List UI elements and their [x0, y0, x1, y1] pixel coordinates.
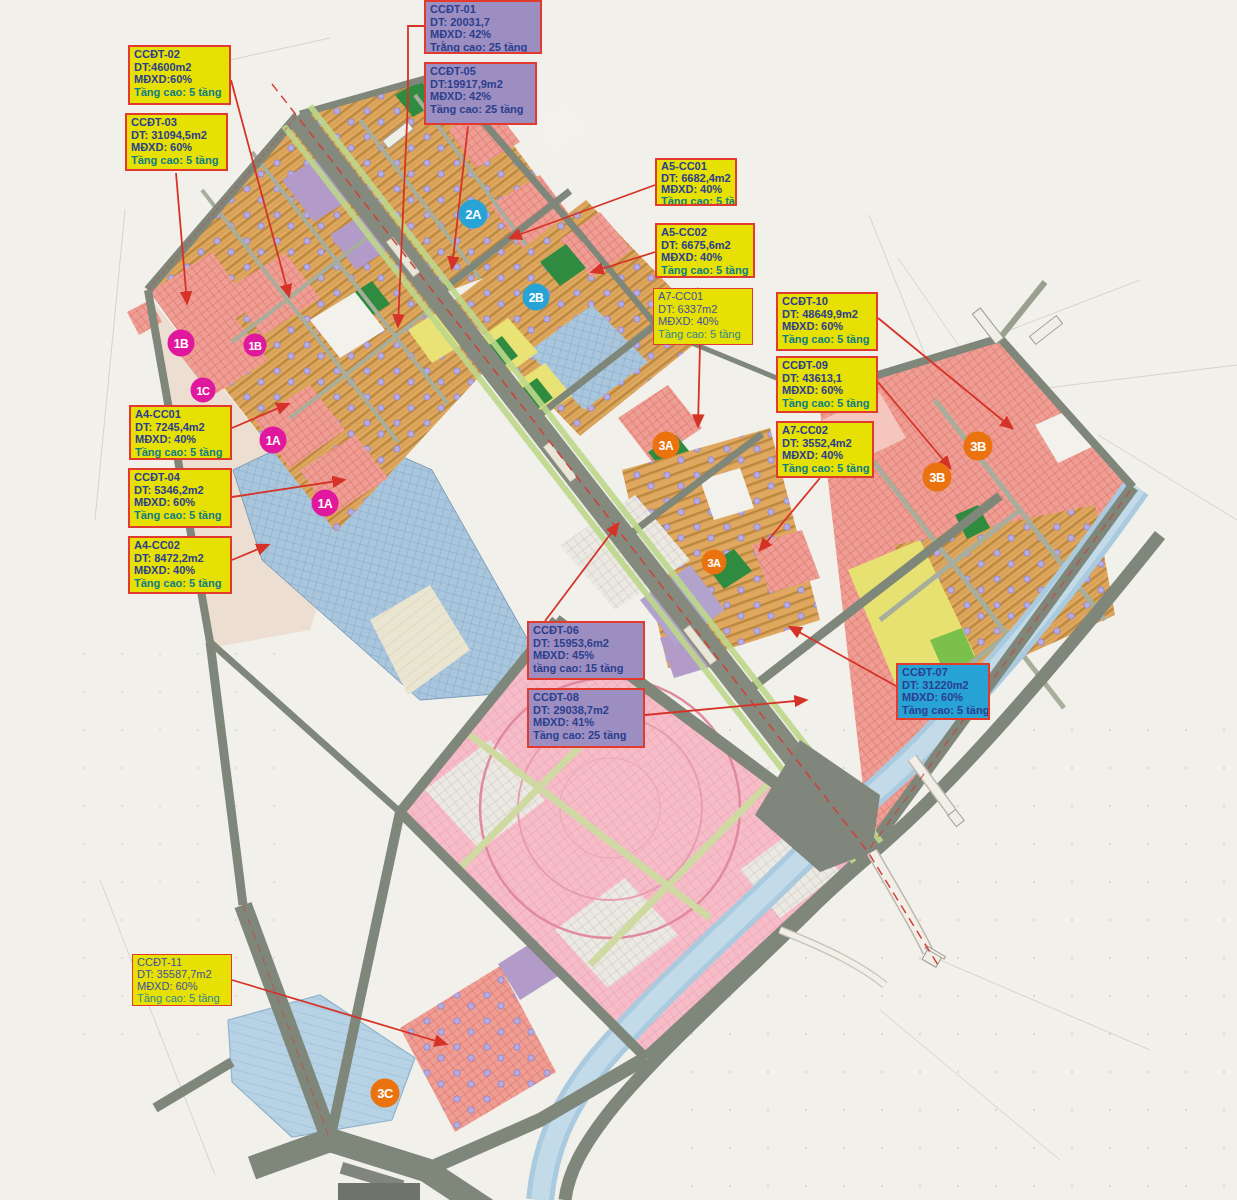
zone-marker-1a-2: 1A: [312, 490, 339, 517]
zone-density: MĐXD: 41%: [533, 716, 639, 729]
zone-floors: Trằng cao: 25 tầng: [430, 41, 536, 54]
zone-area: DT:4600m2: [134, 61, 225, 74]
zone-density: MĐXD: 40%: [782, 449, 868, 462]
zone-area: DT: 15953,6m2: [533, 637, 639, 650]
zone-label-ccdt-01: CCĐT-01 DT: 20031,7 MĐXD: 42% Trằng cao:…: [424, 0, 542, 54]
zone-label-a7-cc02: A7-CC02 DT: 3552,4m2 MĐXD: 40% Tầng cao:…: [776, 421, 874, 478]
zone-id: CCĐT-08: [533, 691, 639, 704]
zone-id: CCĐT-01: [430, 3, 536, 16]
zone-floors: Tầng cao: 5 tầng: [134, 509, 226, 522]
zone-label-a7-cc01: A7-CC01 DT: 6337m2 MĐXD: 40% Tầng cao: 5…: [653, 288, 753, 345]
zone-id: CCĐT-09: [782, 359, 872, 372]
zone-marker-2b: 2B: [523, 284, 550, 311]
zone-id: A7-CC01: [658, 290, 748, 303]
zone-floors: Tầng cao: 5 tầng: [902, 704, 984, 717]
zone-id: A4-CC02: [134, 539, 226, 552]
zone-density: MĐXD: 40%: [658, 315, 748, 328]
zone-density: MĐXD: 40%: [134, 564, 226, 577]
zone-floors: Tầng cao: 5 tầng: [134, 86, 225, 99]
zone-density: MĐXD: 40%: [135, 433, 226, 446]
zone-label-ccdt-10: CCĐT-10 DT: 48649,9m2 MĐXD: 60% Tầng cao…: [776, 292, 878, 351]
zone-floors: Tầng cao: 5 tầng: [782, 462, 868, 475]
zone-density: MĐXD:60%: [134, 73, 225, 86]
zone-floors: Tầng cao: 5 tầng: [782, 333, 872, 346]
zone-id: CCĐT-10: [782, 295, 872, 308]
zone-id: CCĐT-02: [134, 48, 225, 61]
zone-floors: Tầng cao: 5 tầng: [782, 397, 872, 410]
zone-marker-3c: 3C: [371, 1079, 400, 1108]
zone-id: CCĐT-07: [902, 666, 984, 679]
zone-marker-3a-2: 3A: [702, 550, 727, 575]
zone-density: MĐXD: 40%: [661, 251, 749, 264]
zone-area: DT: 8472,2m2: [134, 552, 226, 565]
zone-area: DT: 29038,7m2: [533, 704, 639, 717]
zone-id: A4-CC01: [135, 408, 226, 421]
zone-label-ccdt-08: CCĐT-08 DT: 29038,7m2 MĐXD: 41% Tầng cao…: [527, 688, 645, 748]
zone-area: DT: 35587,7m2: [137, 968, 227, 980]
zone-label-ccdt-04: CCĐT-04 DT: 5346,2m2 MĐXD: 60% Tầng cao:…: [128, 468, 232, 528]
zone-floors: Tầng cao: 5 tầng: [661, 264, 749, 277]
zoning-map-page: CCĐT-01 DT: 20031,7 MĐXD: 42% Trằng cao:…: [0, 0, 1237, 1200]
zone-label-a5-cc01: A5-CC01 DT: 6682,4m2 MĐXD: 40% Tầng cao:…: [655, 158, 737, 206]
zone-id: CCĐT-11: [137, 956, 227, 968]
zone-label-ccdt-09: CCĐT-09 DT: 43613,1 MĐXD: 60% Tầng cao: …: [776, 356, 878, 413]
zone-id: A7-CC02: [782, 424, 868, 437]
zone-label-ccdt-07: CCĐT-07 DT: 31220m2 MĐXD: 60% Tầng cao: …: [896, 663, 990, 720]
zone-id: A5-CC01: [661, 161, 731, 173]
zone-floors: Tầng cao: 25 tầng: [430, 103, 531, 116]
zone-floors: Tầng cao: 5 tầng: [661, 196, 731, 206]
zone-area: DT: 6337m2: [658, 303, 748, 316]
zone-area: DT: 20031,7: [430, 16, 536, 29]
zone-density: MĐXD: 45%: [533, 649, 639, 662]
zone-label-a5-cc02: A5-CC02 DT: 6675,6m2 MĐXD: 40% Tầng cao:…: [655, 223, 755, 278]
zone-density: MĐXD: 60%: [134, 496, 226, 509]
zone-area: DT: 3552,4m2: [782, 437, 868, 450]
zone-density: MĐXD: 42%: [430, 28, 536, 41]
zone-floors: Tầng cao: 5 tầng: [135, 446, 226, 459]
zone-floors: Tầng cao: 5 tầng: [658, 328, 748, 341]
zone-marker-2a: 2A: [459, 200, 488, 229]
zone-marker-1c: 1C: [191, 378, 216, 403]
map-canvas: [0, 0, 1237, 1200]
zone-area: DT: 6675,6m2: [661, 239, 749, 252]
zone-marker-3a: 3A: [653, 432, 680, 459]
zone-marker-1b-2: 1B: [244, 334, 267, 357]
zone-density: MĐXD: 60%: [131, 141, 222, 154]
zone-area: DT: 48649,9m2: [782, 308, 872, 321]
zone-area: DT: 7245,4m2: [135, 421, 226, 434]
zone-id: CCĐT-03: [131, 116, 222, 129]
zone-area: DT: 43613,1: [782, 372, 872, 385]
zone-density: MĐXD: 60%: [782, 320, 872, 333]
zone-marker-3b: 3B: [964, 432, 993, 461]
zone-floors: Tầng cao: 5 tầng: [131, 154, 222, 167]
zone-area: DT: 31220m2: [902, 679, 984, 692]
zone-area: DT:19917,9m2: [430, 78, 531, 91]
zone-id: CCĐT-05: [430, 65, 531, 78]
zone-label-ccdt-02: CCĐT-02 DT:4600m2 MĐXD:60% Tầng cao: 5 t…: [128, 45, 231, 105]
zone-density: MĐXD: 60%: [137, 980, 227, 992]
zone-marker-1b: 1B: [168, 330, 195, 357]
zone-floors: tầng cao: 15 tầng: [533, 662, 639, 675]
zone-id: A5-CC02: [661, 226, 749, 239]
zone-area: DT: 5346,2m2: [134, 484, 226, 497]
zone-label-ccdt-03: CCĐT-03 DT: 31094,5m2 MĐXD: 60% Tầng cao…: [125, 113, 228, 171]
zone-density: MĐXD: 60%: [902, 691, 984, 704]
zone-id: CCĐT-06: [533, 624, 639, 637]
zone-label-ccdt-06: CCĐT-06 DT: 15953,6m2 MĐXD: 45% tầng cao…: [527, 621, 645, 680]
zone-id: CCĐT-04: [134, 471, 226, 484]
zone-density: MĐXD: 60%: [782, 384, 872, 397]
zone-label-ccdt-11: CCĐT-11 DT: 35587,7m2 MĐXD: 60% Tầng cao…: [132, 954, 232, 1006]
zone-marker-1a: 1A: [260, 427, 287, 454]
zone-label-ccdt-05: CCĐT-05 DT:19917,9m2 MĐXD: 42% Tầng cao:…: [424, 62, 537, 125]
zone-floors: Tầng cao: 5 tầng: [134, 577, 226, 590]
zone-label-a4-cc01: A4-CC01 DT: 7245,4m2 MĐXD: 40% Tầng cao:…: [129, 405, 232, 460]
zone-area: DT: 31094,5m2: [131, 129, 222, 142]
zone-label-a4-cc02: A4-CC02 DT: 8472,2m2 MĐXD: 40% Tầng cao:…: [128, 536, 232, 594]
zone-density: MĐXD: 42%: [430, 90, 531, 103]
zone-marker-3b-2: 3B: [923, 463, 952, 492]
zone-density: MĐXD: 40%: [661, 184, 731, 196]
zone-floors: Tầng cao: 25 tầng: [533, 729, 639, 742]
zone-floors: Tầng cao: 5 tầng: [137, 992, 227, 1004]
